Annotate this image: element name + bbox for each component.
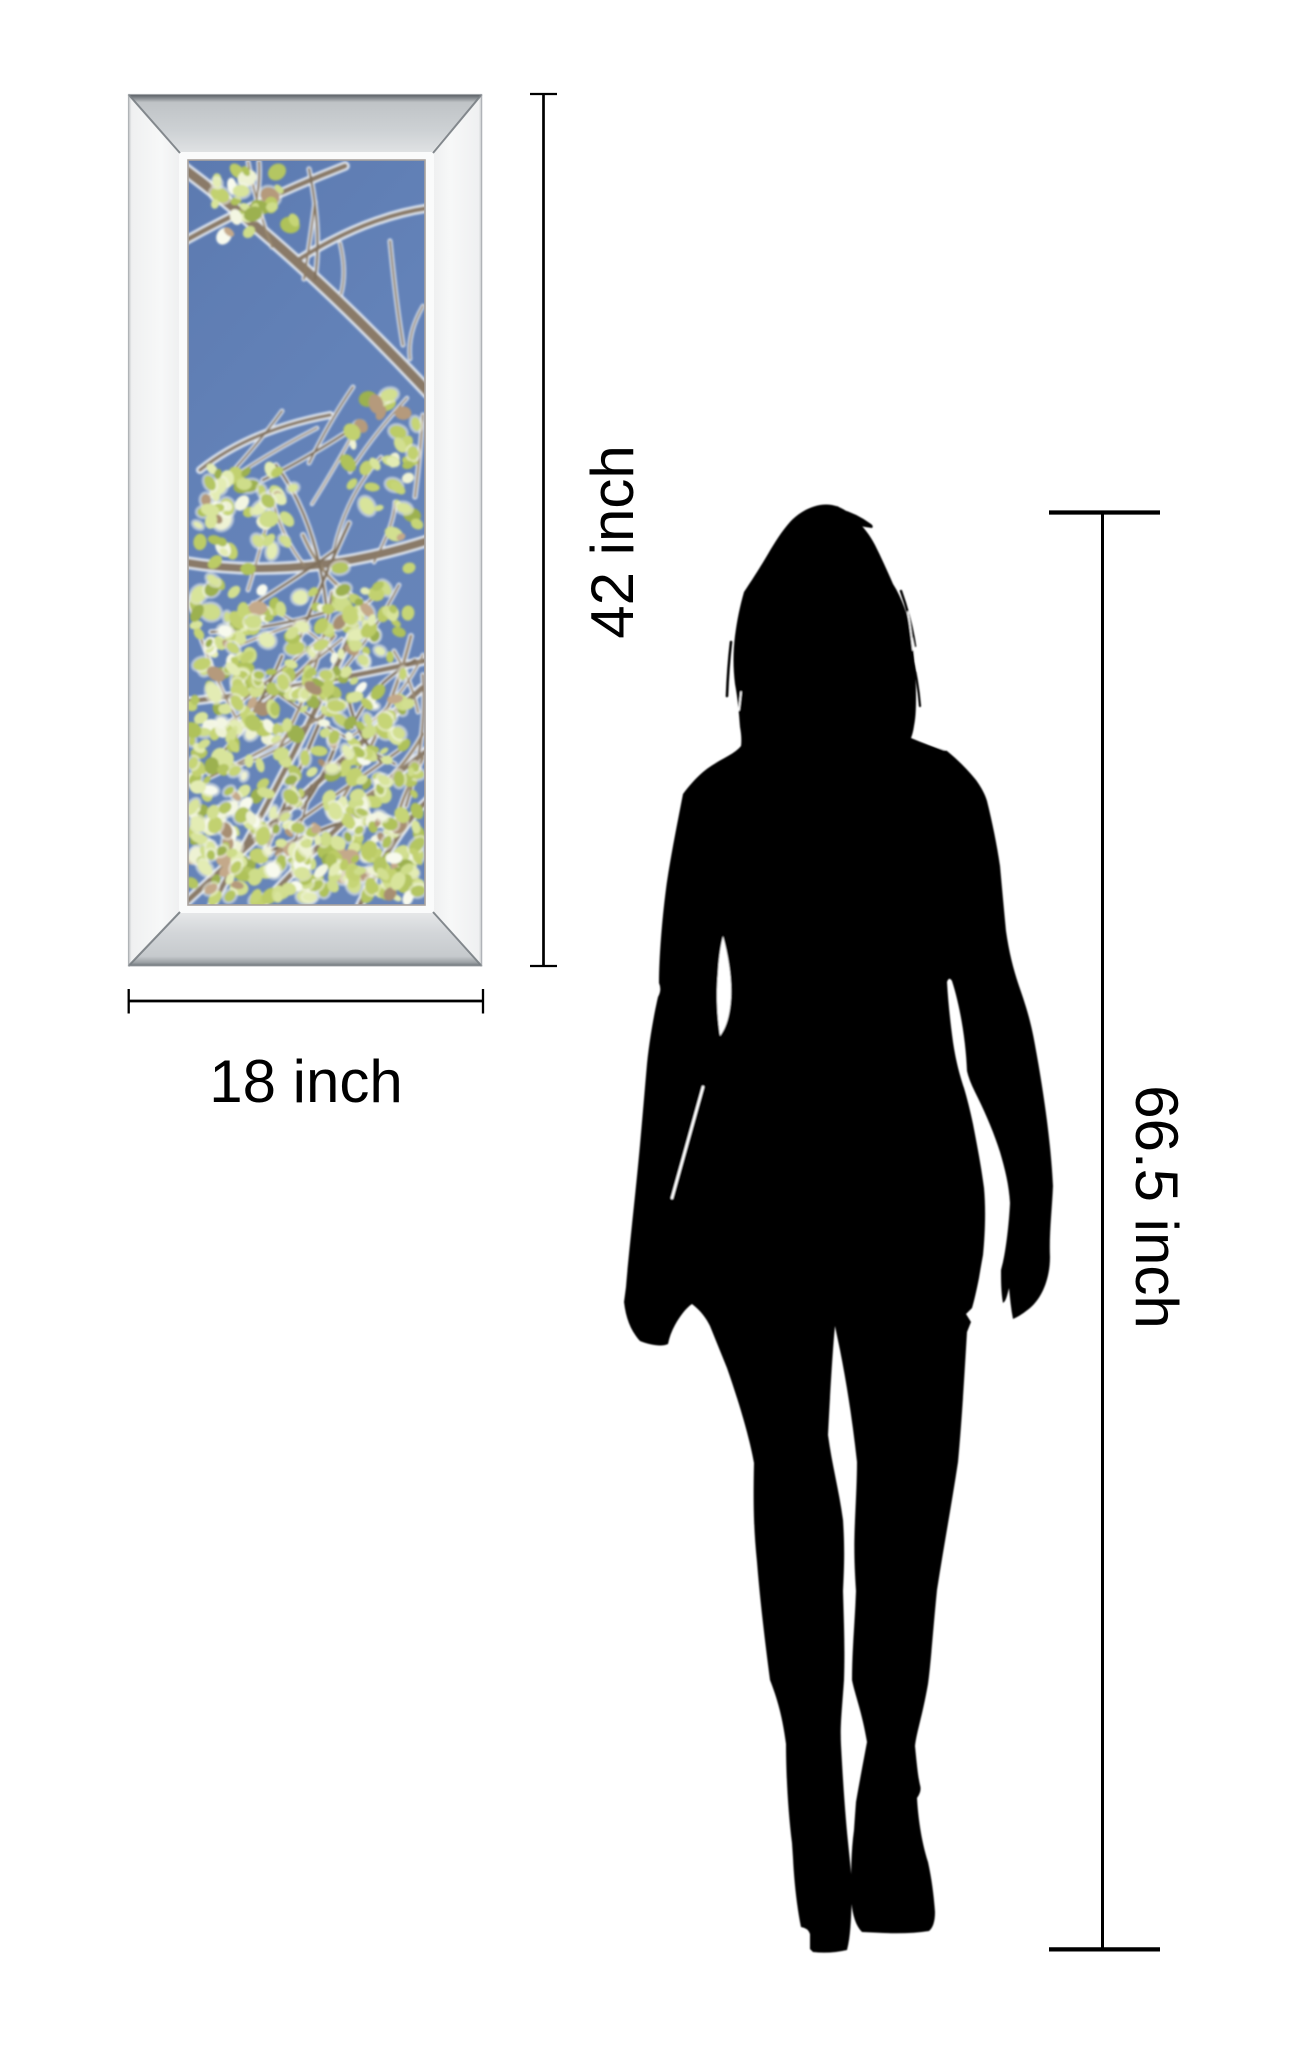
svg-text:66.5 inch: 66.5 inch bbox=[1123, 1085, 1190, 1329]
svg-text:18 inch: 18 inch bbox=[209, 1048, 402, 1115]
svg-text:42 inch: 42 inch bbox=[579, 445, 646, 638]
